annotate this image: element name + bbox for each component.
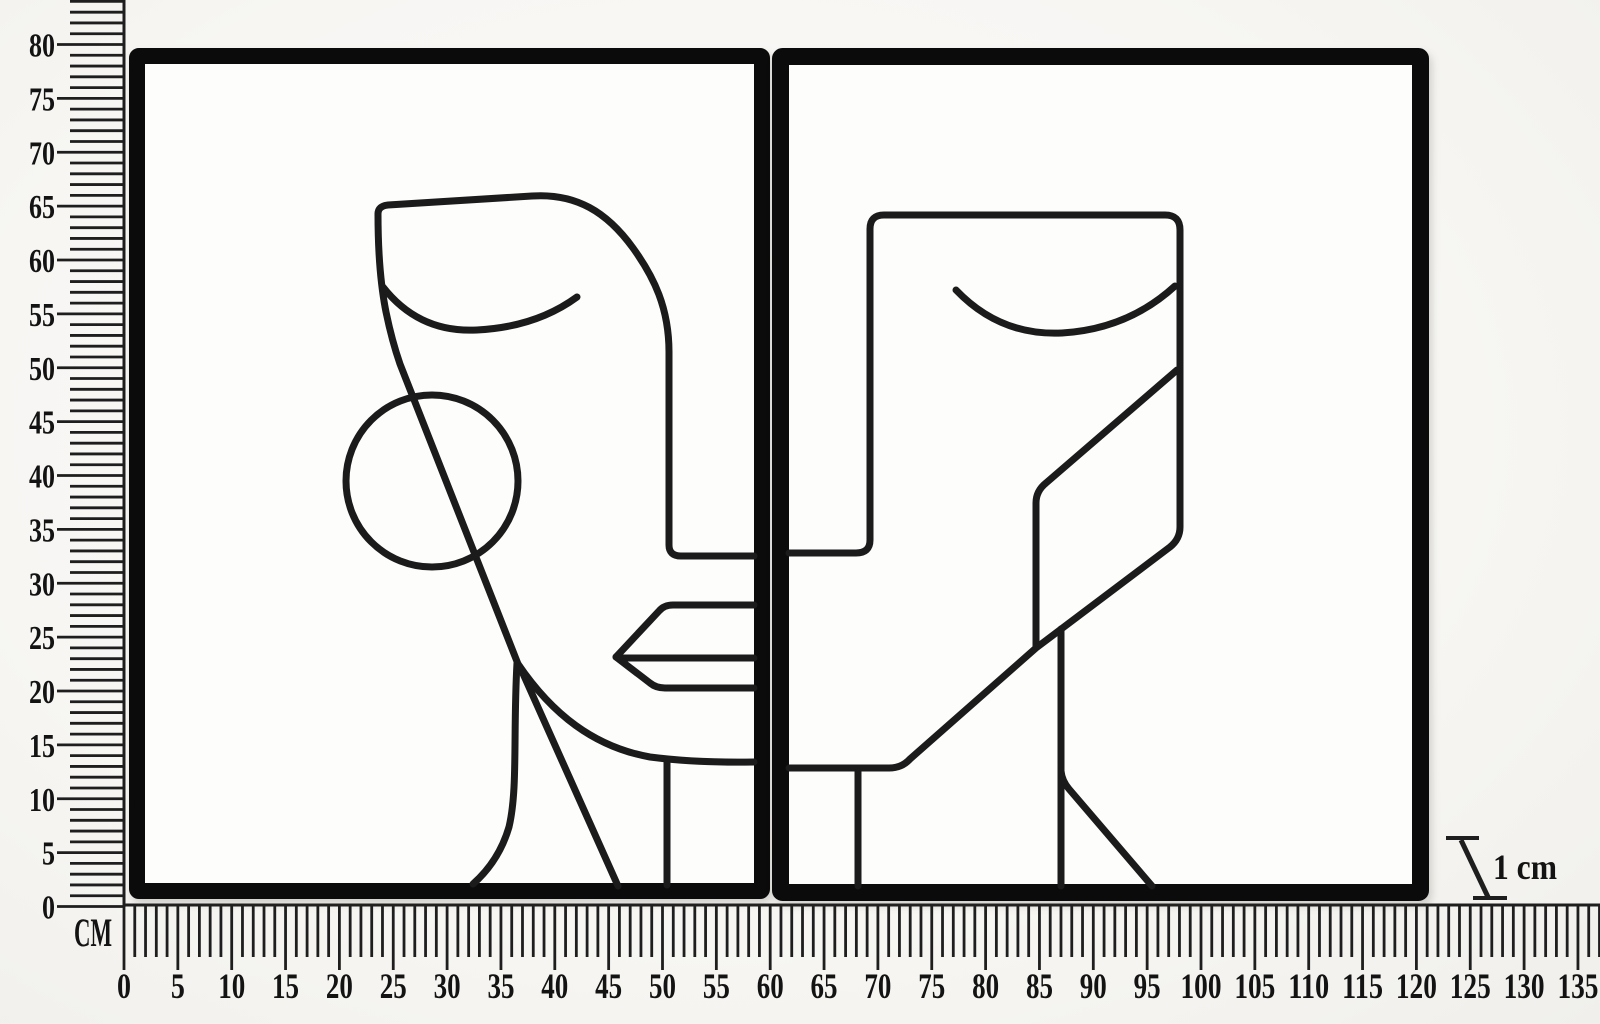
vertical-ruler-label: 30: [29, 566, 55, 603]
vertical-ruler-label: 55: [29, 297, 55, 334]
horizontal-ruler-label: 40: [541, 966, 568, 1006]
vertical-ruler-label: 65: [29, 189, 55, 226]
vertical-ruler-label: 10: [29, 782, 55, 819]
horizontal-ruler-label: 20: [326, 966, 353, 1006]
horizontal-ruler-label: 5: [171, 966, 185, 1006]
horizontal-ruler-label: 95: [1134, 966, 1161, 1006]
scale-indicator-label: 1 cm: [1493, 847, 1557, 887]
horizontal-ruler-label: 100: [1181, 966, 1222, 1006]
horizontal-ruler-label: 80: [972, 966, 999, 1006]
horizontal-ruler-label: 70: [864, 966, 891, 1006]
vertical-ruler-label: 35: [29, 512, 55, 549]
horizontal-ruler-label: 125: [1450, 966, 1491, 1006]
vertical-ruler-label: 60: [29, 243, 55, 280]
horizontal-ruler-label: 30: [434, 966, 461, 1006]
vertical-ruler-label: 40: [29, 459, 55, 496]
right-art-panel: [781, 57, 1421, 893]
vertical-ruler-label: 45: [29, 405, 55, 442]
horizontal-ruler-label: 10: [218, 966, 245, 1006]
vertical-ruler-label: 15: [29, 728, 55, 765]
horizontal-ruler-label: 85: [1026, 966, 1053, 1006]
horizontal-ruler-label: 15: [272, 966, 299, 1006]
horizontal-ruler-label: 50: [649, 966, 676, 1006]
measurement-scene: 05101520253035404550556065707580 0510152…: [0, 0, 1600, 1024]
vertical-ruler-label: 70: [29, 135, 55, 172]
horizontal-ruler: 0510152025303540455055606570758085909510…: [117, 905, 1600, 1006]
horizontal-ruler-label: 115: [1342, 966, 1383, 1006]
horizontal-ruler-label: 110: [1288, 966, 1329, 1006]
horizontal-ruler-label: 90: [1080, 966, 1107, 1006]
scale-indicator-diagonal: [1461, 840, 1488, 897]
vertical-ruler-label: 5: [42, 836, 55, 873]
vertical-ruler-label: 20: [29, 674, 55, 711]
horizontal-ruler-label: 60: [757, 966, 784, 1006]
left-art-panel: [137, 56, 762, 891]
horizontal-ruler-label: 25: [380, 966, 407, 1006]
horizontal-ruler-label: 35: [487, 966, 514, 1006]
vertical-ruler-label: 50: [29, 351, 55, 388]
horizontal-ruler-label: 120: [1396, 966, 1437, 1006]
horizontal-ruler-label: 55: [703, 966, 730, 1006]
horizontal-ruler-label: 105: [1234, 966, 1275, 1006]
horizontal-ruler-label: 65: [811, 966, 838, 1006]
vertical-ruler-label: 0: [42, 890, 55, 927]
scale-indicator: 1 cm: [1446, 838, 1557, 898]
vertical-ruler-label: 80: [29, 28, 55, 65]
horizontal-ruler-label: 45: [595, 966, 622, 1006]
vertical-ruler: 05101520253035404550556065707580: [29, 0, 124, 927]
cm-unit-label: CM: [74, 910, 112, 955]
horizontal-ruler-label: 135: [1557, 966, 1598, 1006]
horizontal-ruler-label: 0: [117, 966, 131, 1006]
vertical-ruler-label: 25: [29, 620, 55, 657]
product-measurement-photo: 05101520253035404550556065707580 0510152…: [0, 0, 1600, 1024]
horizontal-ruler-label: 130: [1504, 966, 1545, 1006]
horizontal-ruler-label: 75: [918, 966, 945, 1006]
vertical-ruler-label: 75: [29, 81, 55, 118]
